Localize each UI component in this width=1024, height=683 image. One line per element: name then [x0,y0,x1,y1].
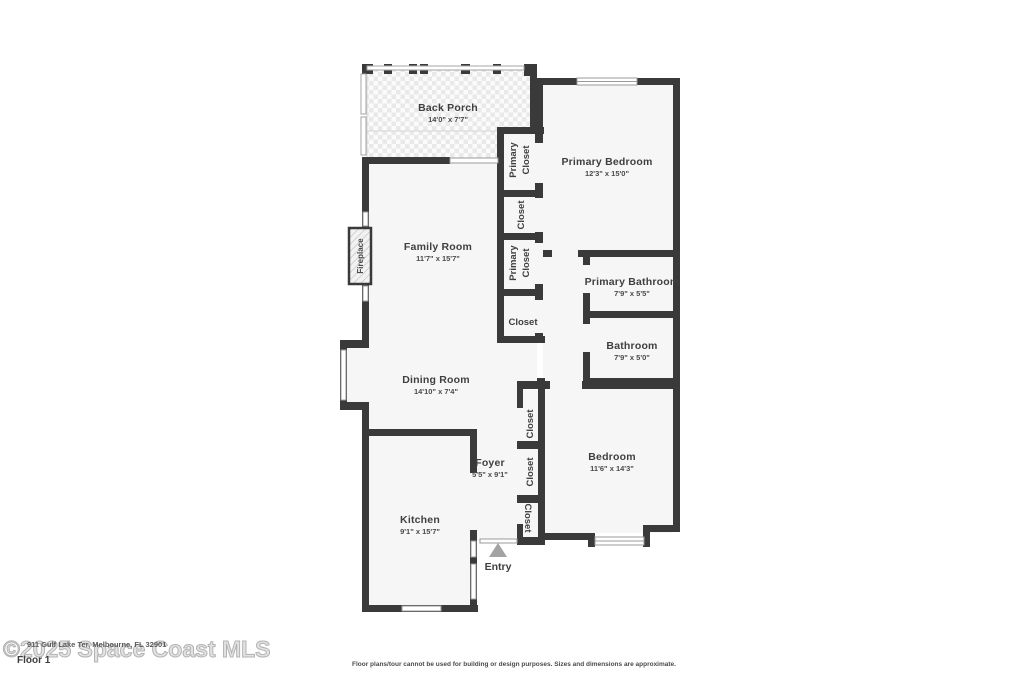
porch-screen-left [361,117,366,155]
slider-door [450,158,498,163]
room-name: Kitchen [400,514,440,526]
closet-label: Closet [521,145,532,175]
closet-label: Closet [521,248,532,278]
entry-door-threshold [480,539,517,543]
wall-segment [517,388,523,408]
wall-segment [500,190,543,197]
wall-segment [583,253,590,265]
wall-segment [643,525,680,532]
entry-label: Entry [485,561,512,573]
floorplan-page: Fireplace Entry Back Porch 14'0" x 7'7" … [0,0,1024,683]
property-address: 911 Gulf Lake Ter, Melbourne, FL 32901 [27,640,166,649]
closet-label: Closet [522,503,533,533]
wall-segment [535,131,543,143]
wall-segment [673,78,680,532]
wall-segment [500,289,543,296]
closet-label: Primary [508,142,519,178]
floor-passage [497,343,537,383]
entry-arrow-icon [489,543,507,557]
room-name: Primary Bedroom [561,156,652,168]
fireplace-label: Fireplace [356,238,365,274]
wall-segment [537,378,545,389]
window [471,541,476,557]
disclaimer-text: Floor plans/tour cannot be used for buil… [352,661,676,668]
wall-segment [362,429,477,436]
wall-segment [543,250,552,257]
wall-segment [362,157,450,164]
room-dims: 7'9" x 5'0" [614,353,650,362]
room-dims: 14'10" x 7'4" [414,387,458,396]
room-name: Back Porch [418,102,478,114]
room-dims: 7'9" x 5'5" [614,289,650,298]
fireplace: Fireplace [349,228,371,284]
room-name: Foyer [475,457,505,469]
closet-label: Closet [508,317,538,328]
room-dims: 12'3" x 15'0" [585,169,629,178]
room-dims: 14'0" x 7'7" [428,115,468,124]
room-name: Bedroom [588,451,636,463]
porch-screen-left [361,74,366,114]
floor-passage2 [497,381,519,431]
wall-segment [583,293,590,324]
room-name: Primary Bathroom [585,276,680,288]
floor-foyer [472,429,517,541]
window [471,564,476,599]
floorplan-drawing: Fireplace Entry Back Porch 14'0" x 7'7" … [0,0,1024,683]
room-dims: 11'7" x 15'7" [416,254,460,263]
floor-back-porch-lower [367,131,498,159]
wall-segment [588,533,595,547]
wall-segment [535,78,543,131]
wall-segment [578,250,680,257]
floor-kitchen-door [470,473,477,530]
wall-segment [538,533,595,540]
room-dims: 5'5" x 9'1" [472,470,508,479]
window [341,350,346,400]
wall-segment [517,495,545,503]
room-dims: 9'1" x 15'7" [400,527,440,536]
window [402,606,441,611]
wall-segment [524,64,537,76]
room-name: Family Room [404,241,472,253]
closet-label: Primary [508,245,519,281]
wall-segment [583,311,680,318]
floor-label: Floor 1 [17,655,50,666]
window [363,286,368,301]
wall-segment [362,408,369,607]
room-name: Dining Room [402,374,470,386]
closet-label: Closet [525,409,536,439]
wall-segment [517,441,545,449]
porch-screen-top [367,66,524,70]
closet-label: Closet [516,200,527,230]
wall-segment [582,381,680,389]
wall-segment [538,388,545,535]
room-dims: 11'6" x 14'3" [590,464,634,473]
room-name: Bathroom [606,340,657,352]
floor-dining-bay [347,346,369,405]
wall-segment [517,381,550,389]
wall-segment [500,233,543,240]
entry-marker: Entry [485,543,512,573]
wall-segment [497,336,545,343]
window [363,212,368,226]
floor-hallway [543,253,590,390]
closet-label: Closet [525,457,536,487]
